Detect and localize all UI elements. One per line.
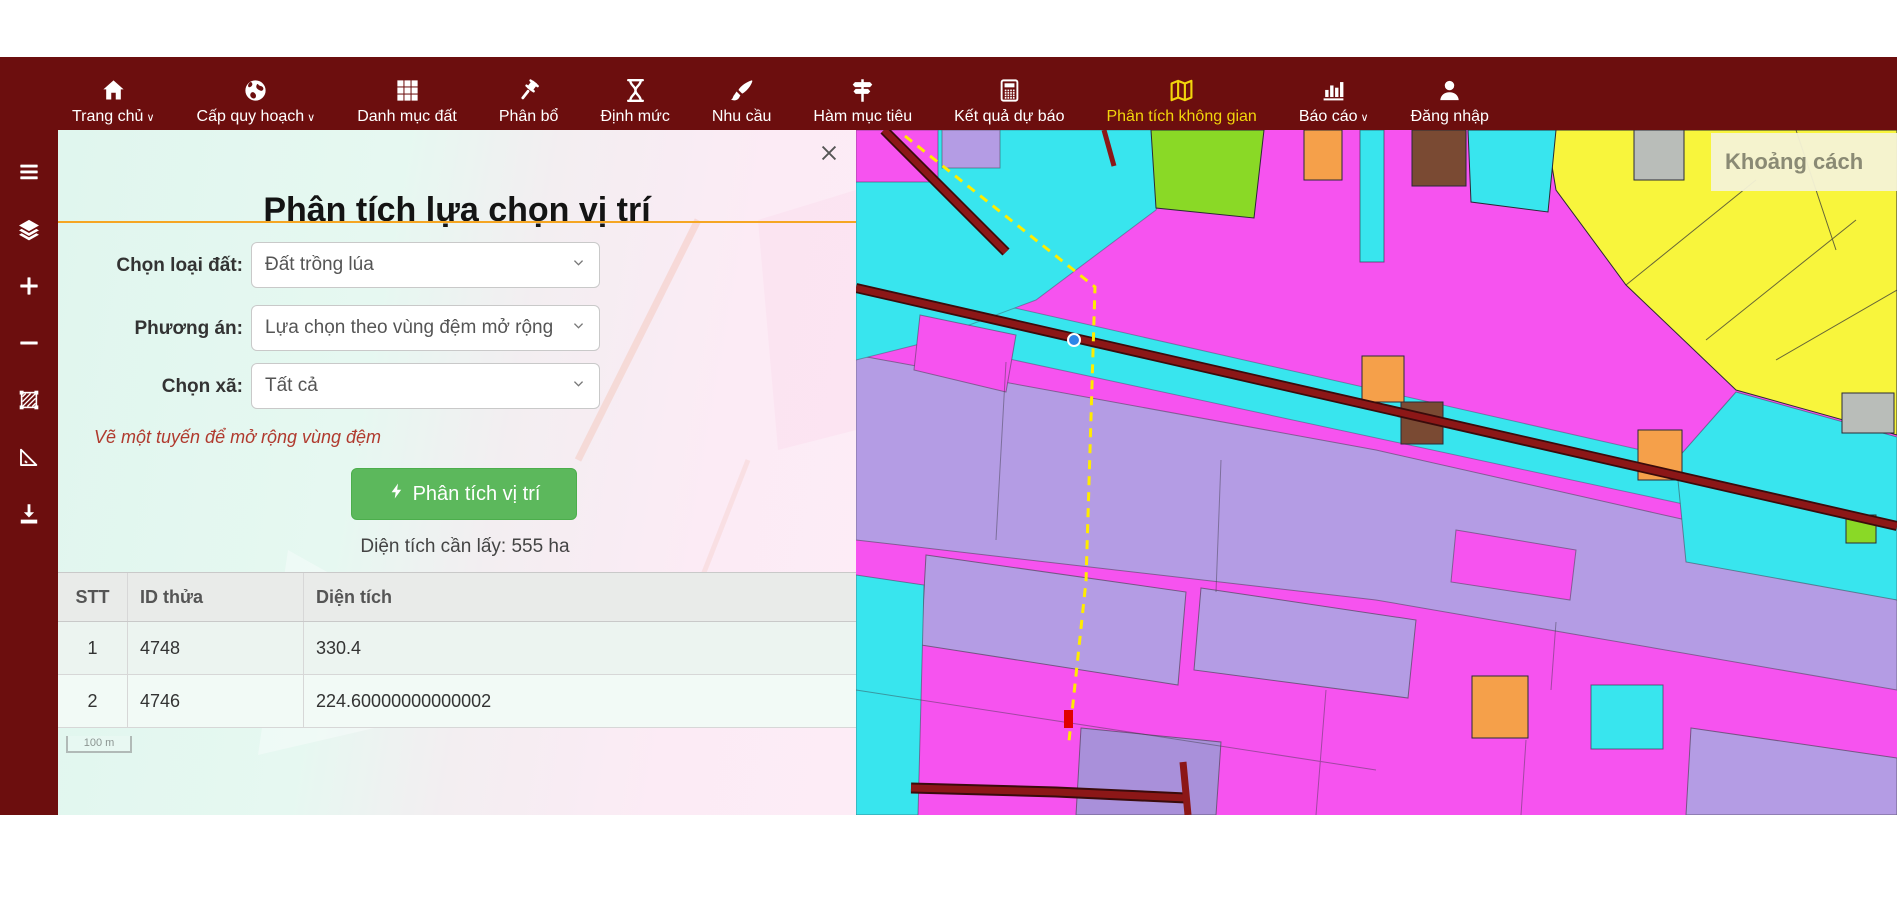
required-area-text: Diện tích cần lấy: 555 ha: [58, 536, 856, 558]
calculator-icon: [996, 77, 1023, 104]
nav-item-label: Trang chủ∨: [72, 109, 155, 125]
field-label-method: Phương án:: [58, 305, 243, 353]
download-icon: [16, 515, 42, 530]
table-row[interactable]: 14748330.4: [58, 622, 856, 675]
nav-item-home[interactable]: Trang chủ∨: [72, 57, 155, 130]
close-panel-button[interactable]: [816, 140, 842, 166]
nav-item-spatial-analysis[interactable]: Phân tích không gian: [1106, 57, 1256, 130]
select-commune[interactable]: Tất cả: [251, 363, 600, 409]
table-cell: 224.60000000000002: [304, 675, 857, 728]
nav-item-label: Phân tích không gian: [1106, 109, 1256, 125]
map-tool-sidebar: [0, 57, 58, 815]
measure-icon: [16, 458, 42, 473]
sidebar-zoom-in-button[interactable]: [16, 273, 42, 299]
nav-item-planning-level[interactable]: Cấp quy hoạch∨: [197, 57, 316, 130]
zoom-out-icon: [16, 344, 42, 359]
nav-item-label: Phân bổ: [499, 109, 559, 125]
globe-icon: [242, 77, 269, 104]
table-cell: 330.4: [304, 622, 857, 675]
field-label-land-type: Chọn loại đất:: [58, 242, 243, 290]
chevron-down-icon: [571, 254, 586, 276]
field-row-commune: Chọn xã:Tất cả: [58, 363, 856, 411]
select-value: Tất cả: [265, 375, 318, 397]
table-header-cell: STT: [58, 573, 128, 622]
map-scale-bar: 100 m: [66, 736, 132, 753]
table-cell: 4746: [128, 675, 304, 728]
app: Trang chủ∨Cấp quy hoạch∨Danh mục đấtPhân…: [0, 0, 1897, 900]
results-table: STTID thửaDiện tích 14748330.424746224.6…: [58, 572, 856, 728]
nav-item-forecast-results[interactable]: Kết quả dự báo: [954, 57, 1064, 130]
map-point-marker[interactable]: [1068, 334, 1080, 346]
table-header-row: STTID thửaDiện tích: [58, 573, 856, 622]
table-header-cell: Diện tích: [304, 573, 857, 622]
nav-item-label: Báo cáo∨: [1299, 109, 1369, 125]
caret-down-icon: ∨: [307, 112, 315, 124]
menu-icon: [16, 173, 42, 188]
nav-item-label: Hàm mục tiêu: [813, 109, 912, 125]
analyze-position-button[interactable]: Phân tích vị trí: [351, 468, 577, 520]
sidebar-draw-area-button[interactable]: [16, 387, 42, 413]
close-icon: [818, 152, 840, 167]
panel-title: Phân tích lựa chọn vị trí: [58, 191, 856, 230]
layers-icon: [16, 230, 42, 245]
select-value: Đất trồng lúa: [265, 254, 374, 276]
person-icon: [1436, 77, 1463, 104]
signpost-icon: [849, 77, 876, 104]
nav-item-label: Đăng nhập: [1411, 109, 1489, 125]
table-row[interactable]: 24746224.60000000000002: [58, 675, 856, 728]
brush-icon: [728, 77, 755, 104]
chevron-down-icon: [571, 317, 586, 339]
bar-chart-icon: [1320, 77, 1347, 104]
measurement-marker: [1064, 710, 1073, 728]
field-row-land-type: Chọn loại đất:Đất trồng lúa: [58, 242, 856, 290]
table-cell: 2: [58, 675, 128, 728]
lightning-bolt-icon: [388, 482, 406, 506]
title-divider: [58, 221, 856, 223]
nav-item-label: Kết quả dự báo: [954, 109, 1064, 125]
nav-item-login[interactable]: Đăng nhập: [1411, 57, 1489, 130]
field-row-method: Phương án:Lựa chọn theo vùng đệm mở rộng: [58, 305, 856, 353]
house-icon: [100, 77, 127, 104]
hourglass-icon: [622, 77, 649, 104]
table-header-cell: ID thửa: [128, 573, 304, 622]
select-value: Lựa chọn theo vùng đệm mở rộng: [265, 317, 553, 339]
table-cell: 1: [58, 622, 128, 675]
sidebar-download-button[interactable]: [16, 501, 42, 527]
nav-item-demand[interactable]: Nhu cầu: [712, 57, 772, 130]
nav-item-objective-function[interactable]: Hàm mục tiêu: [813, 57, 912, 130]
field-label-commune: Chọn xã:: [58, 363, 243, 411]
nav-item-norms[interactable]: Định mức: [600, 57, 669, 130]
results-table-body: 14748330.424746224.60000000000002: [58, 622, 856, 728]
top-navbar: Trang chủ∨Cấp quy hoạch∨Danh mục đấtPhân…: [0, 57, 1897, 130]
sidebar-measure-button[interactable]: [16, 444, 42, 470]
sidebar-layers-button[interactable]: [16, 216, 42, 242]
analyze-button-label: Phân tích vị trí: [413, 483, 541, 506]
map-viewport[interactable]: Khoảng cách: [856, 130, 1897, 815]
nav-item-label: Danh mục đất: [357, 109, 457, 125]
table-cell: 4748: [128, 622, 304, 675]
map-canvas[interactable]: [856, 130, 1897, 815]
nav-item-reports[interactable]: Báo cáo∨: [1299, 57, 1369, 130]
chevron-down-icon: [571, 375, 586, 397]
buffer-instruction-note: Vẽ một tuyến để mở rộng vùng đệm: [94, 427, 381, 448]
select-method[interactable]: Lựa chọn theo vùng đệm mở rộng: [251, 305, 600, 351]
zoom-in-icon: [16, 287, 42, 302]
grid-icon: [394, 77, 421, 104]
distance-tooltip: Khoảng cách: [1711, 133, 1897, 191]
nav-item-label: Định mức: [600, 109, 669, 125]
analysis-panel: Phân tích lựa chọn vị trí Chọn loại đất:…: [58, 130, 856, 815]
nav-item-allocation[interactable]: Phân bổ: [499, 57, 559, 130]
nav-item-label: Cấp quy hoạch∨: [197, 109, 316, 125]
sidebar-zoom-out-button[interactable]: [16, 330, 42, 356]
draw-area-icon: [16, 401, 42, 416]
map-icon: [1168, 77, 1195, 104]
gavel-icon: [515, 77, 542, 104]
caret-down-icon: ∨: [146, 112, 154, 124]
caret-down-icon: ∨: [1361, 112, 1369, 124]
select-land-type[interactable]: Đất trồng lúa: [251, 242, 600, 288]
results-table-head: STTID thửaDiện tích: [58, 573, 856, 622]
sidebar-menu-button[interactable]: [16, 159, 42, 185]
nav-item-label: Nhu cầu: [712, 109, 772, 125]
nav-item-land-category[interactable]: Danh mục đất: [357, 57, 457, 130]
